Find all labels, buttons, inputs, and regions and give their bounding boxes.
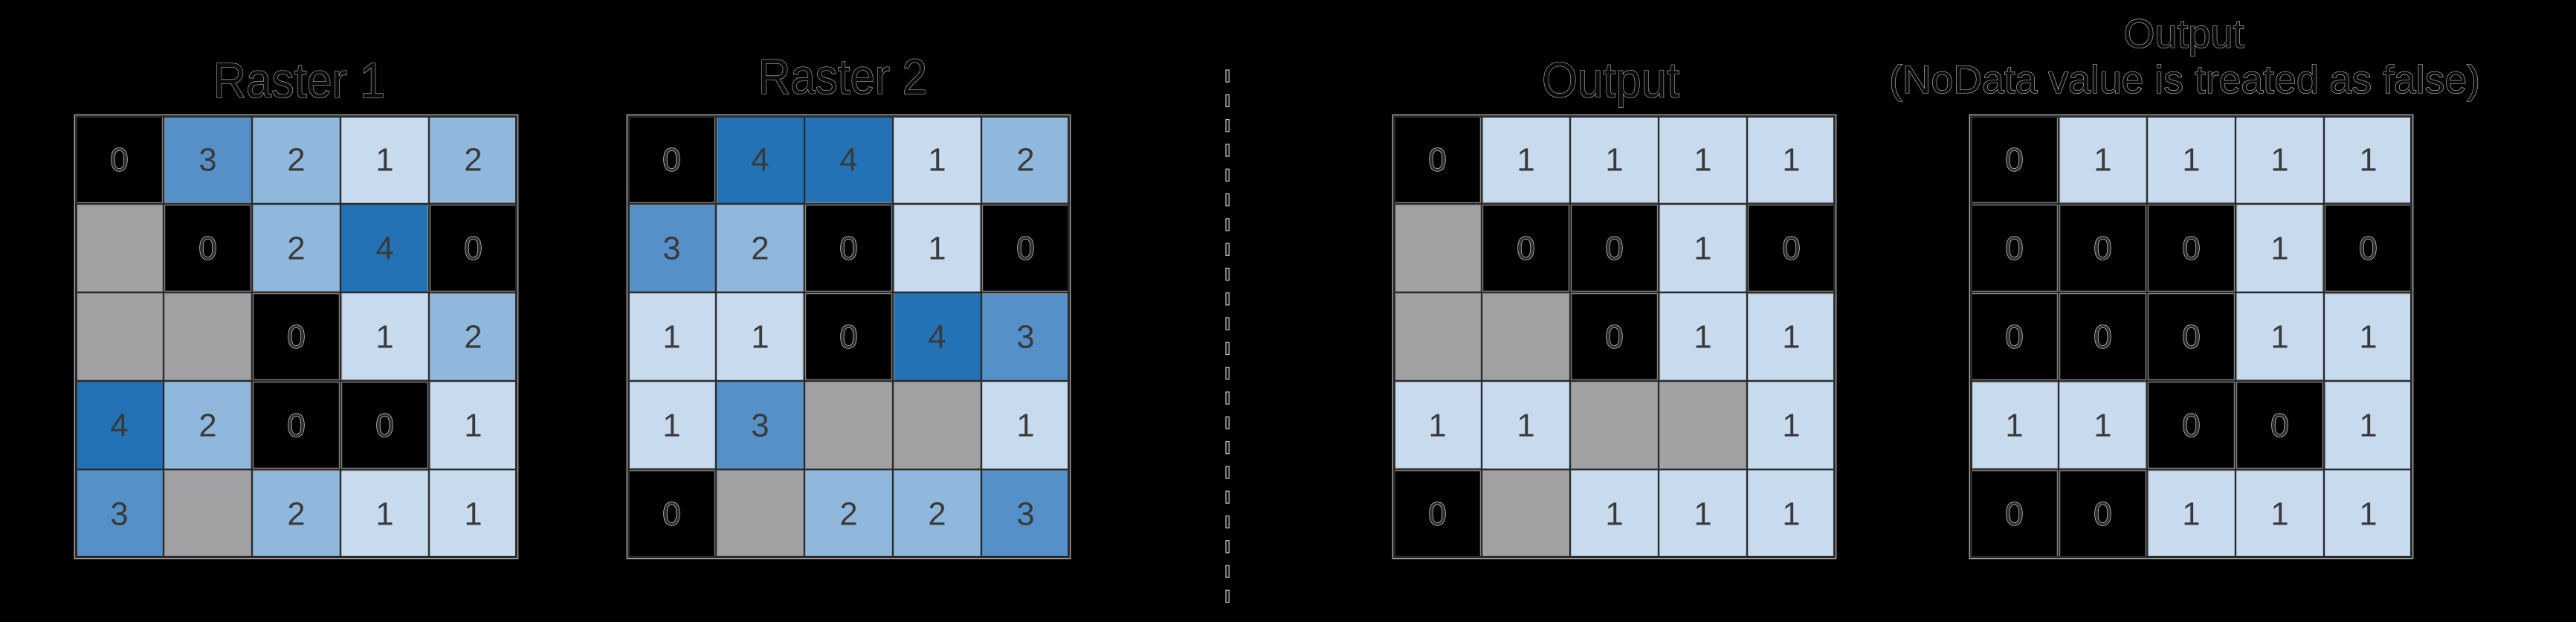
- svg-text:1: 1: [1428, 408, 1446, 444]
- svg-text:0: 0: [1605, 231, 1623, 267]
- svg-text:(NoData value is treated as fa: (NoData value is treated as false): [1889, 58, 2480, 102]
- svg-text:0: 0: [2359, 231, 2377, 267]
- svg-text:0: 0: [2094, 496, 2111, 533]
- svg-text:0: 0: [198, 231, 216, 267]
- svg-text:1: 1: [1694, 320, 1711, 356]
- svg-text:2: 2: [464, 320, 482, 356]
- svg-text:0: 0: [2270, 408, 2288, 444]
- svg-text:4: 4: [839, 143, 857, 179]
- svg-text:1: 1: [2094, 408, 2111, 444]
- svg-text:1: 1: [464, 497, 482, 533]
- svg-text:1: 1: [1605, 143, 1623, 179]
- svg-text:1: 1: [1782, 497, 1800, 533]
- svg-text:2: 2: [928, 497, 946, 533]
- svg-text:0: 0: [662, 496, 680, 533]
- svg-text:2: 2: [751, 231, 769, 267]
- svg-text:1: 1: [2359, 320, 2377, 356]
- svg-text:1: 1: [1782, 408, 1800, 444]
- svg-text:2: 2: [287, 497, 305, 533]
- svg-text:1: 1: [1517, 143, 1534, 179]
- svg-text:1: 1: [751, 320, 769, 356]
- svg-text:0: 0: [2005, 142, 2023, 179]
- svg-text:1: 1: [2094, 143, 2111, 179]
- svg-text:0: 0: [1016, 231, 1034, 267]
- svg-text:4: 4: [928, 320, 946, 356]
- svg-text:1: 1: [464, 408, 482, 444]
- svg-text:0: 0: [2094, 319, 2111, 356]
- svg-text:0: 0: [2094, 231, 2111, 267]
- svg-text:0: 0: [839, 319, 857, 356]
- svg-text:1: 1: [2270, 497, 2288, 533]
- svg-text:0: 0: [2005, 231, 2023, 267]
- svg-text:0: 0: [287, 408, 305, 444]
- svg-text:2: 2: [287, 143, 305, 179]
- svg-text:0: 0: [839, 231, 857, 267]
- svg-text:1: 1: [1605, 497, 1623, 533]
- svg-text:0: 0: [2182, 319, 2200, 356]
- svg-text:1: 1: [928, 143, 946, 179]
- svg-text:0: 0: [287, 319, 305, 356]
- svg-text:Output: Output: [2124, 11, 2244, 57]
- svg-text:3: 3: [662, 231, 680, 267]
- svg-text:1: 1: [1782, 320, 1800, 356]
- svg-text:3: 3: [198, 143, 216, 179]
- svg-text:2: 2: [464, 143, 482, 179]
- svg-text:2: 2: [198, 408, 216, 444]
- svg-text:1: 1: [928, 231, 946, 267]
- svg-text:0: 0: [1428, 142, 1446, 179]
- svg-text:1: 1: [1517, 408, 1534, 444]
- svg-text:0: 0: [1517, 231, 1534, 267]
- svg-text:1: 1: [1694, 231, 1711, 267]
- svg-text:0: 0: [2182, 408, 2200, 444]
- svg-text:1: 1: [662, 320, 680, 356]
- svg-text:4: 4: [110, 408, 128, 444]
- svg-text:1: 1: [1694, 143, 1711, 179]
- svg-text:0: 0: [2005, 496, 2023, 533]
- svg-text:1: 1: [375, 143, 393, 179]
- svg-text:0: 0: [662, 142, 680, 179]
- svg-text:0: 0: [2182, 231, 2200, 267]
- svg-text:Output: Output: [1542, 53, 1679, 109]
- svg-text:2: 2: [287, 231, 305, 267]
- svg-text:1: 1: [662, 408, 680, 444]
- svg-text:1: 1: [2270, 143, 2288, 179]
- svg-text:1: 1: [1694, 497, 1711, 533]
- svg-text:0: 0: [110, 142, 128, 179]
- svg-text:1: 1: [1782, 143, 1800, 179]
- svg-text:0: 0: [1428, 496, 1446, 533]
- svg-text:1: 1: [1016, 408, 1034, 444]
- svg-text:4: 4: [375, 231, 393, 267]
- svg-text:3: 3: [1016, 320, 1034, 356]
- svg-text:3: 3: [751, 408, 769, 444]
- svg-text:1: 1: [2359, 143, 2377, 179]
- svg-text:1: 1: [375, 320, 393, 356]
- svg-text:1: 1: [2182, 143, 2200, 179]
- svg-text:0: 0: [375, 408, 393, 444]
- svg-text:1: 1: [2359, 408, 2377, 444]
- svg-text:1: 1: [2270, 231, 2288, 267]
- svg-text:0: 0: [1605, 319, 1623, 356]
- svg-text:1: 1: [375, 497, 393, 533]
- svg-text:1: 1: [2270, 320, 2288, 356]
- svg-text:0: 0: [464, 231, 482, 267]
- svg-text:0: 0: [1782, 231, 1800, 267]
- svg-text:0: 0: [2005, 319, 2023, 356]
- svg-text:2: 2: [839, 497, 857, 533]
- svg-text:1: 1: [2005, 408, 2023, 444]
- svg-text:1: 1: [2182, 497, 2200, 533]
- svg-text:Raster 1: Raster 1: [213, 53, 385, 109]
- svg-text:3: 3: [110, 497, 128, 533]
- svg-text:Raster 2: Raster 2: [758, 49, 927, 105]
- svg-text:1: 1: [2359, 497, 2377, 533]
- svg-text:3: 3: [1016, 497, 1034, 533]
- svg-text:2: 2: [1016, 143, 1034, 179]
- svg-text:4: 4: [751, 143, 769, 179]
